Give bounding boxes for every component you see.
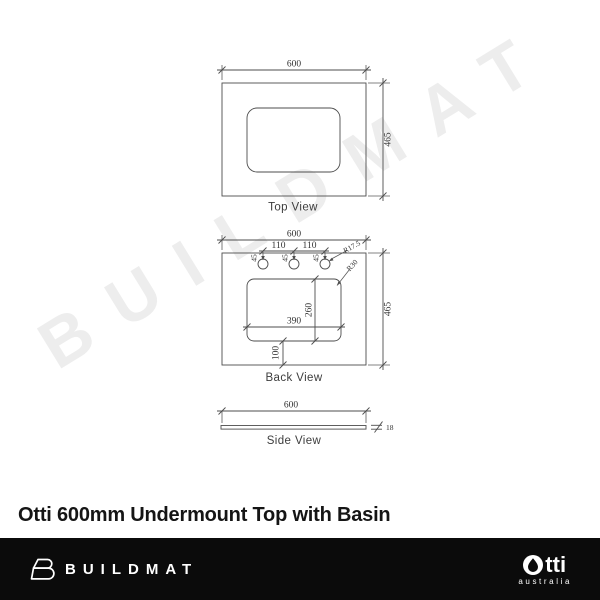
otti-logo-text: tti	[545, 554, 566, 576]
back-view-dim-bottom-offset: 100	[272, 338, 287, 369]
back-view-benchtop-outline	[222, 253, 366, 365]
page: BUILDMAT 600 465 Top View	[0, 0, 600, 600]
top-view-basin-outline	[247, 108, 340, 172]
side-view-width-value: 600	[284, 401, 299, 411]
top-view-dim-depth: 465	[368, 78, 394, 201]
footer-bar: BUILDMAT tti australia	[0, 538, 600, 600]
top-view-benchtop-outline	[222, 83, 366, 196]
side-view-dim-width: 600	[217, 401, 371, 424]
side-view: 600 18 Side View	[217, 401, 394, 448]
tap-hole-left	[258, 259, 268, 269]
buildmat-logo-icon	[28, 556, 56, 583]
side-view-dim-thickness: 18	[371, 422, 394, 433]
hole-offset-value-2: 45	[281, 254, 290, 262]
otti-logo: tti australia	[516, 554, 572, 586]
buildmat-logo-text: BUILDMAT	[65, 561, 198, 578]
product-title: Otti 600mm Undermount Top with Basin	[18, 504, 390, 527]
hole-offset-value-1: 45	[250, 254, 259, 262]
hole-spacing-right-value: 110	[303, 241, 317, 251]
side-view-slab-outline	[221, 426, 366, 430]
back-view-width-value: 600	[287, 230, 302, 240]
top-view-width-value: 600	[287, 60, 302, 70]
corner-radius-value: R30	[345, 257, 360, 272]
cutout-width-value: 390	[287, 317, 302, 327]
back-view-dim-corner-radius: R30	[337, 257, 360, 285]
side-view-label: Side View	[267, 435, 322, 447]
otti-drop-icon	[522, 554, 544, 576]
back-view: 600 110 110 45 4	[217, 230, 394, 385]
top-view-depth-value: 465	[384, 132, 394, 147]
buildmat-logo: BUILDMAT	[28, 556, 198, 583]
back-view-dim-cutout-depth: 260	[305, 276, 319, 345]
back-view-dim-cutout-width: 390	[243, 317, 345, 331]
back-view-depth-value: 465	[384, 302, 394, 317]
technical-drawing: 600 465 Top View 600	[0, 0, 600, 495]
back-view-dim-hole-radius: R17.5	[329, 238, 362, 261]
hole-offset-value-3: 45	[312, 254, 321, 262]
cutout-depth-value: 260	[305, 303, 315, 318]
cutout-bottom-offset-value: 100	[272, 346, 282, 361]
back-view-basin-cutout-outline	[247, 279, 341, 341]
back-view-dim-depth: 465	[368, 248, 394, 370]
thickness-value: 18	[386, 423, 394, 432]
tap-hole-center	[289, 259, 299, 269]
otti-logo-subtext: australia	[516, 577, 572, 586]
top-view-label: Top View	[268, 202, 318, 214]
hole-spacing-left-value: 110	[272, 241, 286, 251]
back-view-label: Back View	[265, 372, 322, 384]
top-view-dim-width: 600	[217, 60, 371, 81]
tap-hole-right	[320, 259, 330, 269]
top-view: 600 465 Top View	[217, 60, 394, 214]
